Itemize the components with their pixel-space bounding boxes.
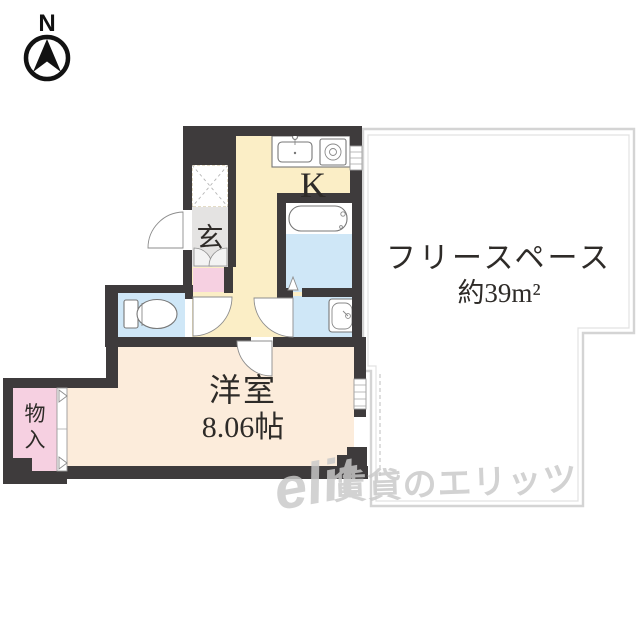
washbasin-icon xyxy=(329,299,355,332)
stove-icon xyxy=(320,139,346,165)
compass-north-label: N xyxy=(38,10,55,37)
western-room-size: 8.06帖 xyxy=(202,411,285,444)
washroom-area xyxy=(293,296,355,337)
storage-label-char1: 物 xyxy=(25,402,46,426)
kitchen-counter xyxy=(272,135,350,167)
entrance-door-arc xyxy=(148,212,183,248)
bathroom-area xyxy=(286,203,352,292)
western-room-label: 洋室 xyxy=(209,372,277,408)
free-space-label: フリースペース xyxy=(386,242,612,275)
fridge-space-icon xyxy=(192,165,228,207)
entrance-door-opening xyxy=(183,210,192,250)
closet-folding-door-icon xyxy=(57,388,67,471)
shoe-cabinet xyxy=(193,268,224,292)
free-space-size: 約39m² xyxy=(457,278,540,308)
western-room-window xyxy=(354,379,366,409)
floorplan-page: フリースペース 約39m² xyxy=(0,0,640,640)
storage-label-char2: 入 xyxy=(25,428,46,452)
free-space-room: フリースペース 約39m² xyxy=(363,129,634,506)
free-space-outline xyxy=(363,129,634,506)
floorplan-drawing: フリースペース 約39m² xyxy=(0,0,640,640)
genkan-label: 玄 xyxy=(197,223,224,253)
toilet-icon xyxy=(124,300,177,329)
compass-icon: N xyxy=(26,10,68,79)
kitchen-label: K xyxy=(300,165,326,205)
kitchen-window xyxy=(350,146,362,170)
bathtub-icon xyxy=(289,206,347,231)
